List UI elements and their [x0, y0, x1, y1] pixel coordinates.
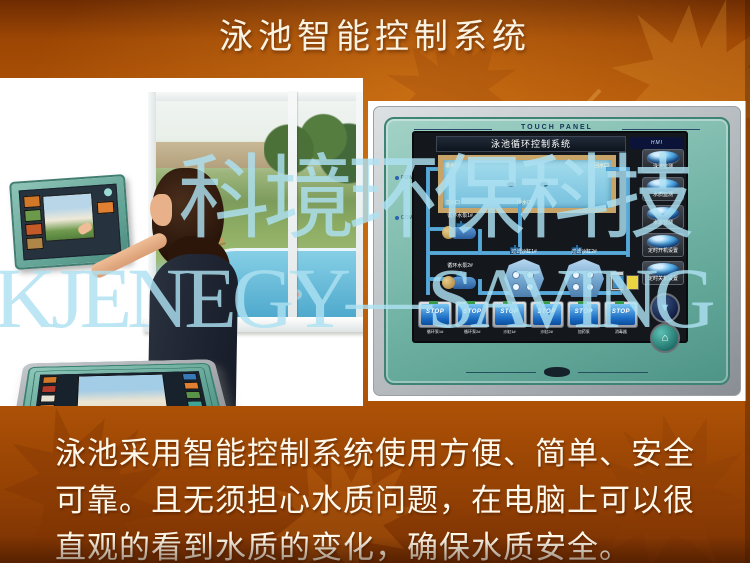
thumbnail: [39, 404, 55, 406]
side-button-label: 定时关机设置: [643, 276, 683, 282]
stop-button-sublabel: 沙缸2#: [530, 329, 564, 334]
magnifier-icon: [104, 188, 113, 197]
side-button-label: 定时开机设置: [643, 248, 683, 254]
page-title: 泳池智能控制系统: [0, 9, 750, 58]
stop-button: STOP 循环泵1#: [418, 301, 452, 334]
glossy-button-icon: [647, 179, 679, 192]
thumbnail: [182, 373, 197, 380]
side-button-label: 泳池监测: [643, 164, 683, 170]
stop-button-face: STOP: [570, 304, 598, 325]
filter-port: [512, 271, 520, 279]
stop-button: STOP 加药泵: [567, 301, 601, 334]
stop-button-sublabel: 沙缸1#: [492, 329, 526, 334]
stop-button-sublabel: 加药泵: [567, 329, 601, 334]
pool-drain: [540, 182, 548, 187]
thumbnail: [97, 201, 115, 214]
glossy-button-icon: [647, 235, 679, 248]
filter-tank: [504, 259, 544, 297]
pool-drain: [507, 182, 515, 187]
pump-motor: [452, 227, 476, 239]
window-frame: [148, 92, 363, 101]
side-button-label: 水温监测: [643, 220, 683, 226]
pump-head: [442, 226, 455, 239]
stop-button-frame: STOP: [455, 301, 489, 328]
thumbnail: [42, 376, 57, 383]
screen-title: 泳池循环控制系统: [436, 136, 626, 152]
side-button: 定时开机设置: [642, 233, 684, 257]
glossy-button-icon: [647, 207, 679, 220]
pipe: [626, 167, 630, 257]
side-button: 定时关机设置: [642, 261, 684, 285]
circulation-pump: 循环水泵1#: [440, 219, 480, 243]
stop-button-frame: STOP: [492, 301, 526, 328]
pump-label: 循环水泵1#: [436, 212, 484, 219]
logo-divider-line: [578, 372, 648, 373]
side-button-label: 水质监测: [643, 192, 683, 198]
home-icon: ⌂: [650, 323, 680, 353]
hmi-logo: HMI: [630, 137, 684, 149]
wall-panel-screen: [19, 184, 122, 261]
stone-wall: [148, 142, 273, 168]
presentation-slide: 泳池智能控制系统: [0, 0, 750, 563]
woman-face: [150, 194, 172, 226]
logo-divider-line: [466, 372, 536, 373]
thumbnail: [24, 209, 42, 222]
product-usage-photo: [0, 78, 363, 406]
pump-motor: [452, 277, 476, 289]
pump-head: [442, 276, 455, 289]
panel-bottom-logo: [386, 367, 728, 377]
glossy-button-icon: [647, 151, 679, 164]
stop-button-face: STOP: [495, 304, 523, 325]
filter-port: [572, 283, 580, 291]
stop-button: STOP 沙缸2#: [530, 301, 564, 334]
stop-button: STOP 消毒器: [604, 301, 638, 334]
stop-button-face: STOP: [421, 304, 449, 325]
filter-label: 过滤沙缸1#: [500, 248, 548, 255]
right-vignette: [745, 0, 750, 563]
side-button: 水温监测: [642, 205, 684, 229]
filter-port: [572, 271, 580, 279]
brand-divider-line: [622, 129, 700, 130]
stop-button-face: STOP: [458, 304, 486, 325]
thumbnail: [26, 237, 44, 250]
pipe: [518, 203, 522, 253]
side-button: 水质监测: [642, 177, 684, 201]
filter-port: [586, 283, 594, 291]
trees: [264, 106, 363, 185]
house-photo: [42, 192, 95, 241]
stop-button-frame: STOP: [418, 301, 452, 328]
stop-button-frame: STOP: [604, 301, 638, 328]
hmi-screen: 泳池循环控制系统 HMI 进水口 回水口 溢水口 排水口: [412, 131, 688, 343]
stop-button-face: STOP: [607, 304, 635, 325]
thumbnail: [184, 382, 200, 389]
side-button: 泳池监测: [642, 149, 684, 173]
pool-port-label: 进水口: [445, 162, 460, 169]
stop-button-row: STOP 循环泵1# STOP 循环泵2# STOP 沙缸1# STOP 沙缸2…: [418, 301, 638, 334]
stop-button-sublabel: 循环泵2#: [455, 329, 489, 334]
bottom-vignette: [0, 537, 750, 563]
body-line: 可靠。且无须担心水质问题，在电脑上可以很: [55, 477, 710, 524]
stop-button-sublabel: 循环泵1#: [418, 329, 452, 334]
thumbnail: [25, 223, 43, 236]
pool-port-label: 溢水口: [445, 199, 460, 206]
sand-filter: 过滤沙缸1#: [502, 255, 546, 299]
sand-filter: 过滤沙缸2#: [562, 255, 606, 299]
pipe: [426, 167, 430, 295]
stop-button: STOP 循环泵2#: [455, 301, 489, 334]
pool-diagram: 进水口 回水口 溢水口 排水口: [438, 155, 616, 213]
maker-logo-icon: [544, 367, 570, 377]
filter-port: [526, 271, 534, 279]
house-photo: [75, 374, 173, 406]
side-button-column: 泳池监测 水质监测 水温监测 定时开机设置 定时关机设置: [642, 149, 684, 339]
filter-tank: [564, 259, 604, 297]
stop-button-frame: STOP: [530, 301, 564, 328]
thumbnail: [23, 195, 41, 208]
thumbnail: [40, 395, 56, 403]
thumbnail: [185, 391, 201, 398]
equipment-box: [626, 275, 639, 290]
window-frame: [356, 92, 363, 330]
panel-screen: [30, 371, 216, 406]
window-mullion: [288, 92, 297, 330]
thumbnail: [187, 401, 203, 406]
body-line: 泳池采用智能控制系统使用方便、简单、安全: [55, 430, 710, 477]
pump-label: 循环水泵2#: [436, 262, 484, 269]
stop-button-frame: STOP: [567, 301, 601, 328]
equipment-box: [612, 275, 624, 289]
arrow-down-icon: ▼: [650, 293, 680, 323]
glossy-button-icon: [647, 263, 679, 276]
filter-port: [526, 283, 534, 291]
stop-button-sublabel: 消毒器: [604, 329, 638, 334]
stop-button-face: STOP: [533, 304, 561, 325]
circulation-pump: 循环水泵2#: [440, 269, 480, 293]
brand-divider-line: [414, 129, 492, 130]
filter-port: [586, 271, 594, 279]
filter-label: 过滤沙缸2#: [560, 248, 608, 255]
touch-panel-photo: TOUCH PANEL POWER COMM 泳池循环控制系统 HMI 进水口 …: [368, 101, 746, 401]
stop-button: STOP 沙缸1#: [492, 301, 526, 334]
tilted-touch-panel: [5, 359, 241, 406]
thumbnail: [41, 385, 56, 392]
filter-port: [512, 283, 520, 291]
